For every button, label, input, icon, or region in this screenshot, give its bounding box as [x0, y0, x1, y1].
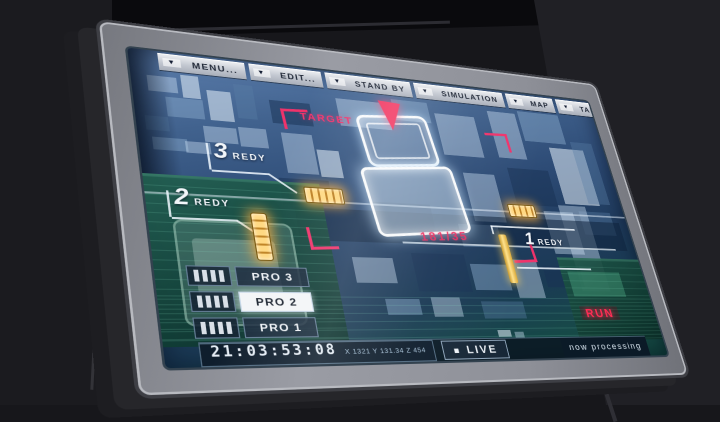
level-ticks-icon: [185, 265, 232, 286]
pro-button-group: PRO 3 PRO 2 PRO 1: [185, 265, 319, 339]
timestamp-box: 21:03:53:08 X 1321 Y 131.34 Z 454: [198, 340, 437, 368]
mosaic-block: [411, 253, 473, 292]
pro-label: PRO 2: [238, 292, 314, 312]
coordinates-readout: X 1321 Y 131.34 Z 454: [344, 347, 426, 356]
dropdown-arrow-icon: ▼: [329, 77, 346, 86]
block-mosaic: [127, 48, 588, 102]
ready-indicator-2: 2REDY: [172, 183, 231, 213]
mosaic-block: [497, 330, 512, 337]
pro-label: PRO 3: [234, 266, 310, 287]
mosaic-block: [385, 299, 423, 315]
timestamp: 21:03:53:08: [210, 342, 339, 361]
ready-label: REDY: [232, 151, 267, 163]
ready-indicator-3: 3REDY: [211, 138, 268, 167]
menu-item-label: STAND BY: [354, 79, 406, 93]
record-square-icon: ■: [453, 345, 463, 355]
level-ticks-icon: [189, 291, 237, 312]
ready-indicator-1: 1REDY: [522, 230, 565, 251]
menu-item-label: SIMULATION: [440, 89, 498, 103]
mosaic-block: [507, 168, 558, 207]
target-readout: 181/35: [419, 229, 471, 243]
dropdown-arrow-icon: ▼: [162, 58, 181, 68]
mosaic-block: [352, 257, 398, 283]
pro-label: PRO 1: [242, 317, 319, 338]
processing-status: now processing: [560, 337, 651, 358]
run-status: RUN: [579, 306, 621, 320]
mosaic-block: [481, 301, 527, 318]
dropdown-arrow-icon: ▼: [253, 68, 271, 78]
ready-lamp-3: [303, 187, 345, 205]
target-bracket-bl: [306, 227, 340, 250]
mosaic-block: [517, 111, 566, 145]
mosaic-block: [180, 75, 201, 99]
mosaic-block: [316, 149, 344, 178]
live-indicator: ■ LIVE: [441, 340, 510, 360]
dropdown-arrow-icon: ▼: [418, 87, 434, 96]
pro-button-1[interactable]: PRO 1: [192, 317, 319, 339]
panel-slab: [567, 271, 626, 296]
menu-item-label: MAP: [529, 100, 550, 110]
mosaic-block: [233, 84, 258, 120]
mosaic-block: [206, 90, 235, 122]
ready-label: REDY: [194, 197, 231, 209]
ready-lamp-1: [507, 204, 537, 218]
status-bar-spacer: [508, 348, 563, 349]
ready-number: 2: [172, 183, 191, 210]
menu-item-label: MENU...: [191, 61, 238, 75]
connector-line: [212, 170, 270, 176]
menu-item-label: EDIT...: [279, 71, 316, 83]
pro-button-2[interactable]: PRO 2: [189, 291, 315, 312]
tactical-screen: ▼ MENU... ▼ EDIT... ▼ STAND BY ▼ SIMULAT…: [125, 45, 670, 370]
scene: ▼ MENU... ▼ EDIT... ▼ STAND BY ▼ SIMULAT…: [0, 0, 720, 405]
live-label: LIVE: [465, 343, 499, 356]
dropdown-arrow-icon: ▼: [559, 103, 573, 111]
mosaic-block: [281, 132, 320, 174]
ready-label: REDY: [537, 238, 565, 248]
status-bar: 21:03:53:08 X 1321 Y 131.34 Z 454 ■ LIVE…: [198, 336, 651, 368]
pro-button-3[interactable]: PRO 3: [185, 265, 310, 287]
level-ticks-icon: [192, 317, 240, 338]
menu-item-menu[interactable]: ▼ MENU...: [157, 53, 246, 80]
menu-item-edit[interactable]: ▼ EDIT...: [248, 63, 324, 87]
ready-number: 3: [211, 138, 229, 164]
menu-item-map[interactable]: ▼ MAP: [504, 93, 556, 113]
mosaic-block: [431, 297, 464, 317]
dropdown-arrow-icon: ▼: [509, 98, 524, 106]
menu-item-standby[interactable]: ▼ STAND BY: [324, 72, 413, 97]
